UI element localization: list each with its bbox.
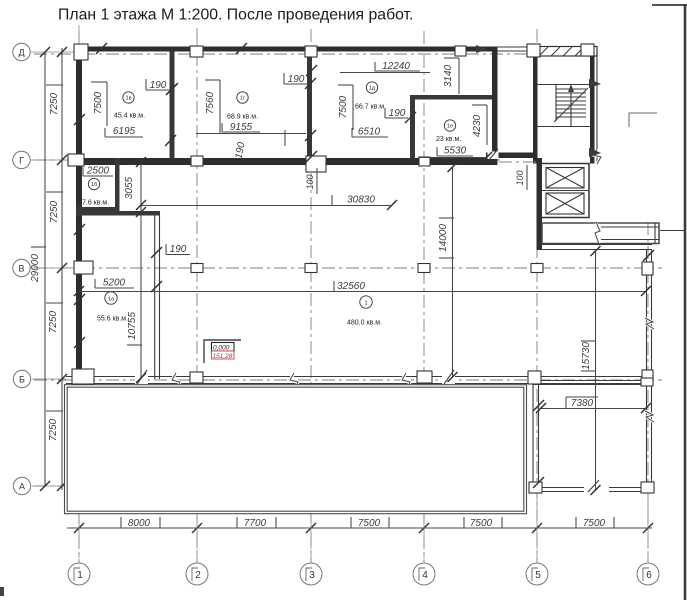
svg-text:190: 190 bbox=[170, 244, 187, 255]
svg-text:0,000: 0,000 bbox=[213, 345, 230, 352]
svg-text:7700: 7700 bbox=[244, 518, 267, 529]
svg-text:7250: 7250 bbox=[49, 200, 60, 223]
svg-text:4230: 4230 bbox=[472, 114, 483, 137]
svg-text:190: 190 bbox=[288, 74, 305, 85]
svg-text:10755: 10755 bbox=[127, 312, 138, 340]
svg-text:29000: 29000 bbox=[30, 254, 41, 283]
svg-text:151,28: 151,28 bbox=[213, 353, 233, 360]
svg-text:7500: 7500 bbox=[358, 518, 381, 529]
svg-text:9155: 9155 bbox=[230, 122, 253, 133]
svg-text:7560: 7560 bbox=[205, 91, 216, 114]
svg-text:6510: 6510 bbox=[358, 127, 381, 138]
svg-text:8000: 8000 bbox=[128, 518, 151, 529]
svg-text:В: В bbox=[18, 264, 24, 274]
svg-text:7250: 7250 bbox=[48, 418, 59, 441]
svg-text:7500: 7500 bbox=[93, 91, 104, 114]
svg-text:45.4 кв.м.: 45.4 кв.м. bbox=[114, 113, 145, 120]
svg-text:7500: 7500 bbox=[470, 518, 493, 529]
svg-text:3: 3 bbox=[309, 570, 315, 581]
svg-text:7380: 7380 bbox=[571, 398, 594, 409]
svg-text:7.6 кв.м.: 7.6 кв.м. bbox=[82, 200, 109, 207]
svg-text:190: 190 bbox=[150, 80, 167, 91]
svg-text:1д: 1д bbox=[369, 86, 376, 92]
svg-text:1б: 1б bbox=[91, 182, 97, 188]
svg-text:План 1 этажа М 1:200. После пр: План 1 этажа М 1:200. После проведения р… bbox=[58, 7, 413, 24]
svg-text:2500: 2500 bbox=[86, 166, 110, 177]
svg-text:5: 5 bbox=[535, 570, 541, 581]
svg-text:3055: 3055 bbox=[124, 176, 135, 199]
svg-text:66.7 кв.м.: 66.7 кв.м. bbox=[355, 104, 386, 111]
svg-text:1: 1 bbox=[364, 301, 367, 307]
svg-text:Д: Д bbox=[18, 48, 24, 58]
svg-text:68.9 кв.м.: 68.9 кв.м. bbox=[227, 114, 258, 121]
svg-text:1: 1 bbox=[77, 570, 83, 581]
svg-text:7500: 7500 bbox=[338, 95, 349, 118]
svg-text:7500: 7500 bbox=[583, 518, 606, 529]
svg-text:5530: 5530 bbox=[444, 146, 467, 157]
svg-text:1в: 1в bbox=[125, 96, 131, 102]
svg-text:3140: 3140 bbox=[443, 64, 454, 87]
svg-text:100: 100 bbox=[305, 174, 315, 189]
svg-text:7250: 7250 bbox=[49, 92, 60, 115]
svg-text:2: 2 bbox=[195, 570, 201, 581]
svg-text:15730: 15730 bbox=[581, 342, 592, 370]
svg-text:1г: 1г bbox=[240, 96, 245, 102]
svg-text:32560: 32560 bbox=[337, 281, 365, 292]
svg-text:480.0 кв.м.: 480.0 кв.м. bbox=[347, 320, 382, 327]
svg-text:Г: Г bbox=[19, 156, 24, 166]
svg-text:12240: 12240 bbox=[382, 61, 410, 72]
svg-text:7250: 7250 bbox=[48, 310, 59, 333]
svg-text:Б: Б bbox=[19, 375, 25, 385]
svg-text:30830: 30830 bbox=[347, 195, 375, 206]
svg-text:1а: 1а bbox=[108, 297, 115, 303]
svg-text:14000: 14000 bbox=[438, 224, 449, 252]
svg-text:5200: 5200 bbox=[103, 278, 126, 289]
svg-text:190: 190 bbox=[389, 108, 406, 119]
svg-text:55.6 кв.м.: 55.6 кв.м. bbox=[97, 316, 128, 323]
svg-text:4: 4 bbox=[422, 570, 428, 581]
svg-text:6: 6 bbox=[646, 570, 652, 581]
svg-text:23 кв.м.: 23 кв.м. bbox=[436, 136, 461, 143]
svg-text:100: 100 bbox=[515, 170, 525, 185]
svg-text:6195: 6195 bbox=[113, 126, 136, 137]
svg-text:1е: 1е bbox=[447, 124, 453, 130]
svg-text:А: А bbox=[19, 482, 25, 492]
